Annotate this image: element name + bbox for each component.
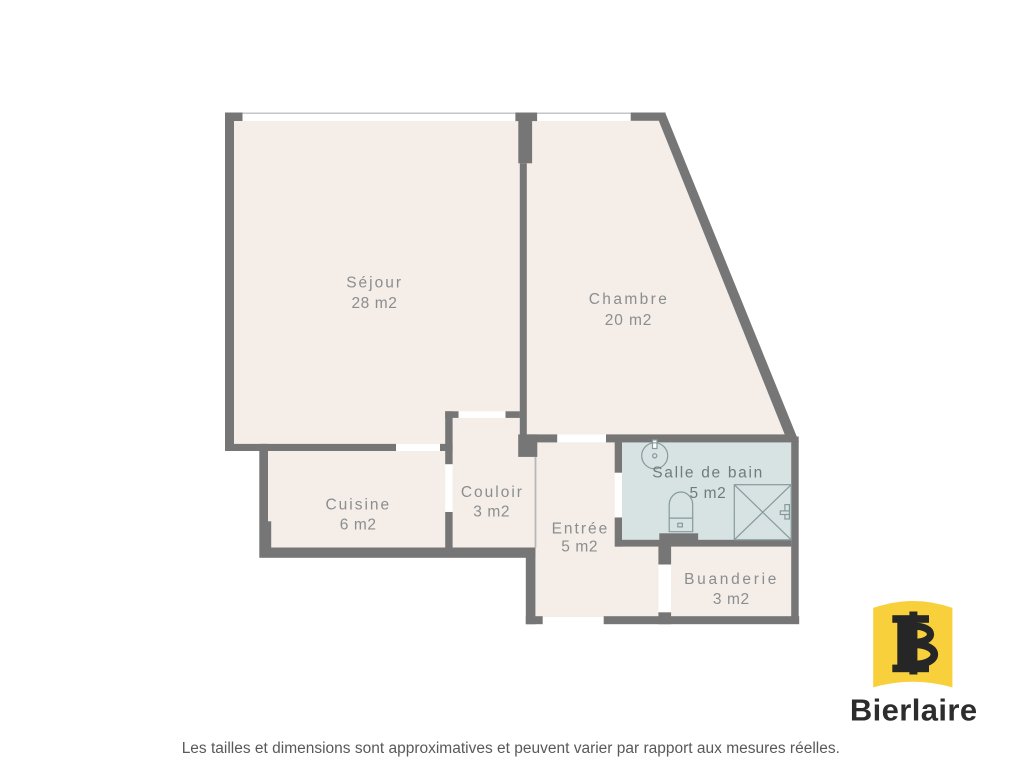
svg-text:Les tailles et dimensions sont: Les tailles et dimensions sont approxima… <box>182 740 840 757</box>
svg-text:Séjour: Séjour <box>346 275 403 292</box>
svg-text:Cuisine: Cuisine <box>325 497 391 514</box>
svg-text:20 m2: 20 m2 <box>605 312 653 329</box>
svg-text:Couloir: Couloir <box>461 484 524 501</box>
svg-text:6 m2: 6 m2 <box>340 517 377 534</box>
svg-text:28 m2: 28 m2 <box>351 295 397 312</box>
svg-text:Entrée: Entrée <box>552 521 610 538</box>
svg-text:Chambre: Chambre <box>589 291 670 308</box>
svg-text:Salle de bain: Salle de bain <box>652 465 764 482</box>
svg-text:5 m2: 5 m2 <box>689 485 726 502</box>
svg-text:5 m2: 5 m2 <box>561 539 598 556</box>
svg-text:Bierlaire: Bierlaire <box>850 693 978 728</box>
svg-text:3 m2: 3 m2 <box>473 504 510 521</box>
svg-text:3 m2: 3 m2 <box>713 591 750 608</box>
svg-text:Buanderie: Buanderie <box>684 571 779 588</box>
